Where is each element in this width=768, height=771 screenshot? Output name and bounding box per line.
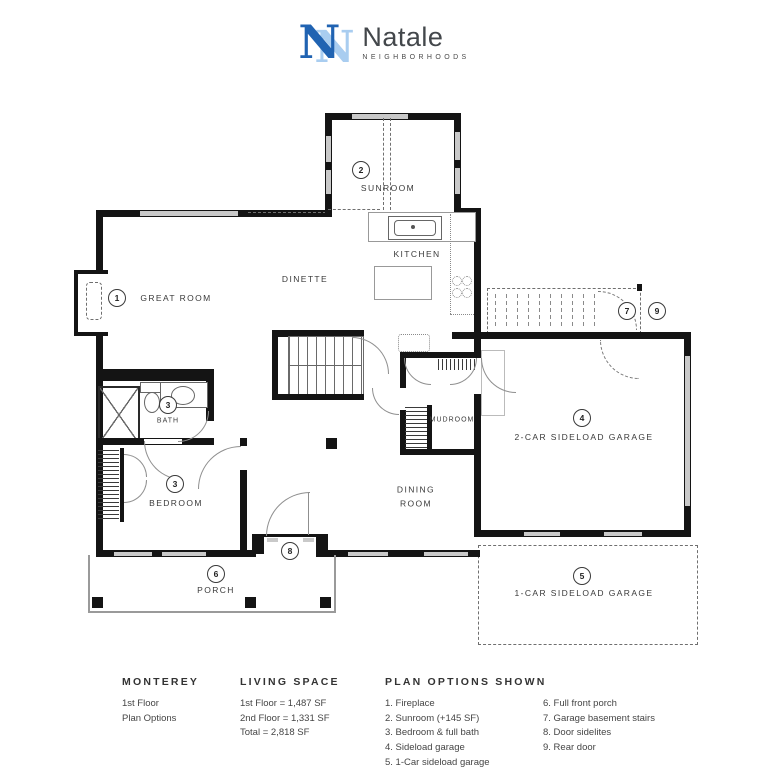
rear-door-swing [600,340,639,379]
door-swing [450,358,477,385]
door-swing [144,441,183,480]
plan-option-item: 4. Sideload garage [385,741,517,756]
window [455,168,460,194]
pantry-cabinet [398,334,430,352]
living-space-title: LIVING SPACE [240,676,380,688]
cooktop-burner [452,288,462,298]
marker-bedroom: 3 [166,475,184,493]
living-space-line: Total = 2,818 SF [240,726,380,741]
counter-outline [450,214,451,314]
wall [427,405,432,453]
dashed-wall [248,212,326,213]
brand-tagline: NEIGHBORHOODS [362,54,469,61]
marker-door-sidelites: 8 [281,542,299,560]
garage-door [685,356,690,506]
plan-option-item: 1. Fireplace [385,697,517,712]
door-sidelite [303,538,314,542]
wall [272,394,364,400]
label-bedroom: BEDROOM [149,498,203,508]
entry-pier [316,534,328,554]
plan-name-line: 1st Floor [122,697,232,712]
label-porch: PORCH [197,585,235,595]
label-bath: BATH [157,418,179,425]
monogram-dark-n: N [298,14,340,70]
door-swing [404,358,431,385]
door-jamb [637,284,642,291]
plan-options-list-1: 1. Fireplace 2. Sunroom (+145 SF) 3. Bed… [385,697,517,771]
wall [96,369,214,381]
wall [480,332,691,339]
marker-rear-door: 9 [648,302,666,320]
kitchen-sink-basin [394,220,436,236]
plan-name-column: MONTEREY 1st Floor Plan Options [122,676,232,726]
plan-options-list-2: 6. Full front porch 7. Garage basement s… [543,697,683,771]
label-dinette: DINETTE [282,274,328,284]
closet-hatch [405,407,427,451]
front-door-leaf [308,492,309,535]
brand-logo: N N Natale NEIGHBORHOODS [298,14,469,70]
closet-door-swing [124,480,147,503]
plan-option-item: 3. Bedroom & full bath [385,726,517,741]
closet-hatch [98,450,119,520]
label-1-car-garage: 1-CAR SIDELOAD GARAGE [515,588,654,598]
window [424,552,468,556]
label-2-car-garage: 2-CAR SIDELOAD GARAGE [515,432,654,442]
marker-garage1: 5 [573,567,591,585]
plan-name-line: Plan Options [122,712,232,727]
stair-dash-mask [495,291,601,329]
plan-name-title: MONTEREY [122,676,232,688]
marker-fireplace: 1 [108,289,126,307]
window [140,211,238,216]
shower [98,386,140,444]
fireplace-insert [86,282,102,320]
plan-option-item: 7. Garage basement stairs [543,712,683,727]
door-opening [240,446,247,470]
marker-porch: 6 [207,565,225,583]
optional-wall-line [390,118,391,210]
marker-bath: 3 [159,396,177,414]
toilet-bowl [144,392,160,413]
cooktop-burner [462,288,472,298]
marker-garage2: 4 [573,409,591,427]
porch-post [320,597,331,608]
plan-option-item: 5. 1-Car sideload garage [385,756,517,771]
wall [400,449,481,455]
wall [480,530,691,537]
label-mudroom: MUDROOM [430,417,475,424]
window [326,170,331,194]
door-swing [198,446,241,489]
entry-pier [252,534,264,554]
door-sidelite [267,538,278,542]
plan-options-column: PLAN OPTIONS SHOWN 1. Fireplace 2. Sunro… [385,676,685,771]
window [326,136,331,162]
porch-post [245,597,256,608]
counter-outline [450,314,474,315]
page: { "brand": { "monogram": "N", "name": "N… [0,0,768,768]
marker-sunroom: 2 [352,161,370,179]
plan-options-title: PLAN OPTIONS SHOWN [385,676,685,688]
porch-outline [88,555,336,613]
living-space-line: 2nd Floor = 1,331 SF [240,712,380,727]
wall [454,113,461,215]
label-kitchen: KITCHEN [393,249,440,259]
sink-drain [411,225,415,229]
floor-plan: 1 2 3 3 4 5 6 7 8 9 GREAT ROOM DINETTE K… [0,0,768,768]
column-post [326,438,337,449]
basement-stair-treads [495,291,601,329]
front-door-swing [266,492,310,536]
closet-door-swing [124,454,147,477]
door-swing [352,337,389,374]
cooktop-burner [452,276,462,286]
living-space-line: 1st Floor = 1,487 SF [240,697,380,712]
kitchen-island [374,266,432,300]
window [455,132,460,160]
label-great-room: GREAT ROOM [140,293,211,303]
cooktop-burner [462,276,472,286]
window [348,552,388,556]
door-swing [372,388,399,415]
brand-name: Natale [362,23,469,51]
living-space-column: LIVING SPACE 1st Floor = 1,487 SF 2nd Fl… [240,676,380,741]
dashed-wall [328,209,380,210]
stair-landing-line [288,365,362,366]
window [352,114,408,119]
porch-post [92,597,103,608]
wall [452,332,481,339]
optional-wall-line [383,118,384,210]
plan-option-item: 8. Door sidelites [543,726,683,741]
plan-option-item: 6. Full front porch [543,697,683,712]
window [524,532,560,536]
fireplace [74,270,108,336]
brand-monogram-icon: N N [298,14,350,70]
label-sunroom: SUNROOM [361,183,415,193]
label-dining-room: DINING ROOM [380,483,452,512]
wall [325,113,332,215]
plan-option-item: 9. Rear door [543,741,683,756]
marker-basement-stairs: 7 [618,302,636,320]
wall [272,337,278,399]
plan-option-item: 2. Sunroom (+145 SF) [385,712,517,727]
brand-text: Natale NEIGHBORHOODS [362,23,469,61]
window [604,532,642,536]
